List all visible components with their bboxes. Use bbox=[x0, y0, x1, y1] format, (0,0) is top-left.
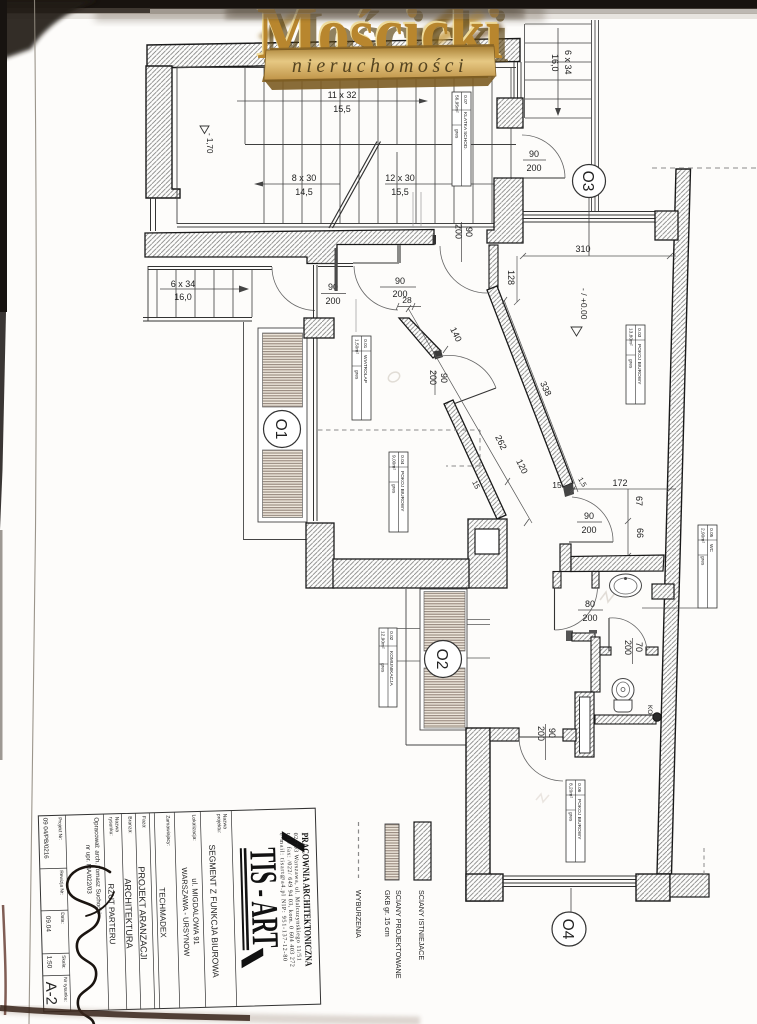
svg-text:0.05: 0.05 bbox=[708, 528, 714, 538]
svg-text:6 x 34: 6 x 34 bbox=[563, 50, 573, 75]
svg-text:Nr rysunku:: Nr rysunku: bbox=[62, 977, 69, 1002]
svg-text:POKOJ BIUROWY: POKOJ BIUROWY bbox=[576, 799, 582, 840]
svg-text:1:50: 1:50 bbox=[45, 956, 52, 969]
svg-text:KO: KO bbox=[646, 705, 653, 714]
svg-text:TECHMADEX: TECHMADEX bbox=[157, 887, 167, 938]
svg-text:rysunku:: rysunku: bbox=[107, 817, 114, 836]
svg-text:200: 200 bbox=[581, 525, 596, 535]
svg-text:2,90m²: 2,90m² bbox=[699, 528, 705, 543]
svg-text:- 1,70: - 1,70 bbox=[205, 133, 214, 154]
svg-text:14,5: 14,5 bbox=[295, 187, 313, 197]
svg-text:RZUT PARTERU: RZUT PARTERU bbox=[106, 883, 117, 944]
svg-text:6 x 34: 6 x 34 bbox=[171, 279, 196, 289]
svg-text:nieruchomości: nieruchomości bbox=[292, 55, 468, 77]
svg-text:0.01: 0.01 bbox=[362, 339, 368, 349]
svg-text:9,00m²: 9,00m² bbox=[390, 455, 396, 470]
svg-text:KOMUNIKACJA: KOMUNIKACJA bbox=[388, 651, 394, 686]
svg-text:200: 200 bbox=[536, 726, 546, 741]
svg-text:56,95m²: 56,95m² bbox=[453, 95, 459, 113]
svg-text:200: 200 bbox=[325, 296, 340, 306]
svg-text:gres: gres bbox=[379, 663, 385, 673]
svg-text:Data:: Data: bbox=[59, 912, 65, 924]
svg-text:0.06: 0.06 bbox=[576, 783, 582, 793]
svg-text:0.07: 0.07 bbox=[462, 95, 468, 105]
svg-text:1,50m²: 1,50m² bbox=[353, 339, 359, 354]
svg-text:Lokalizacja:: Lokalizacja: bbox=[190, 815, 197, 841]
svg-text:15,5: 15,5 bbox=[391, 187, 409, 197]
svg-text:200: 200 bbox=[428, 370, 438, 385]
svg-text:12,90m²: 12,90m² bbox=[379, 631, 385, 649]
svg-text:0.03: 0.03 bbox=[636, 328, 642, 338]
svg-text:Skala:: Skala: bbox=[60, 955, 66, 969]
svg-text:gres: gres bbox=[390, 484, 396, 494]
svg-text:8,20m²: 8,20m² bbox=[567, 783, 573, 798]
svg-text:Zamawiajacy:: Zamawiajacy: bbox=[164, 815, 171, 846]
svg-text:O1: O1 bbox=[272, 419, 289, 440]
svg-text:67: 67 bbox=[634, 496, 644, 506]
svg-text:O2: O2 bbox=[433, 649, 450, 670]
svg-text:200: 200 bbox=[623, 640, 633, 655]
svg-text:gres: gres bbox=[567, 812, 573, 822]
svg-text:200: 200 bbox=[582, 613, 597, 623]
svg-text:66: 66 bbox=[635, 528, 645, 538]
svg-text:0.02: 0.02 bbox=[388, 631, 394, 641]
svg-text:128: 128 bbox=[506, 270, 516, 285]
svg-text:90: 90 bbox=[547, 728, 557, 738]
svg-text:09.04: 09.04 bbox=[44, 916, 51, 933]
svg-text:ARCHITEKTURA: ARCHITEKTURA bbox=[123, 878, 135, 948]
svg-text:- / +0.00: - / +0.00 bbox=[579, 288, 589, 320]
svg-text:Branza:: Branza: bbox=[126, 816, 132, 833]
svg-text:Rewizja Nr:: Rewizja Nr: bbox=[58, 870, 65, 895]
svg-text:O3: O3 bbox=[579, 171, 596, 192]
svg-text:Faza:: Faza: bbox=[140, 816, 146, 829]
svg-text:172: 172 bbox=[612, 478, 627, 488]
svg-text:90: 90 bbox=[464, 227, 474, 237]
svg-text:15,5: 15,5 bbox=[333, 104, 351, 114]
svg-text:80: 80 bbox=[585, 599, 595, 609]
svg-text:SCIANY PROJEKTOWANE: SCIANY PROJEKTOWANE bbox=[394, 890, 403, 979]
svg-text:POKOJ BIUROWY: POKOJ BIUROWY bbox=[399, 471, 405, 512]
svg-text:200: 200 bbox=[454, 224, 464, 239]
svg-text:POKOJ BIUROWY: POKOJ BIUROWY bbox=[636, 344, 642, 385]
svg-text:Projekt Nr:: Projekt Nr: bbox=[56, 817, 63, 840]
svg-text:28: 28 bbox=[402, 295, 412, 305]
svg-text:12 x 30: 12 x 30 bbox=[385, 173, 415, 183]
svg-text:O4: O4 bbox=[559, 919, 576, 940]
svg-text:09 04/PB/0216: 09 04/PB/0216 bbox=[41, 818, 49, 860]
svg-text:KLATKA SCHOD.: KLATKA SCHOD. bbox=[462, 112, 468, 150]
svg-text:16,0: 16,0 bbox=[174, 292, 192, 302]
svg-text:16,0: 16,0 bbox=[550, 54, 560, 72]
svg-text:15: 15 bbox=[552, 480, 562, 490]
svg-text:A-2: A-2 bbox=[42, 981, 60, 1005]
svg-text:13,80m²: 13,80m² bbox=[627, 328, 633, 346]
svg-text:0.04: 0.04 bbox=[399, 455, 405, 465]
svg-text:SCIANY ISTNIEJACE: SCIANY ISTNIEJACE bbox=[417, 890, 426, 960]
svg-text:gres: gres bbox=[627, 359, 633, 369]
svg-text:ul. MIGDALOWA 91: ul. MIGDALOWA 91 bbox=[190, 878, 201, 945]
svg-text:WYBURZENIA: WYBURZENIA bbox=[354, 890, 363, 938]
svg-text:gres: gres bbox=[699, 556, 705, 566]
svg-text:200: 200 bbox=[526, 163, 541, 173]
svg-text:11 x 32: 11 x 32 bbox=[328, 90, 357, 100]
svg-text:gres: gres bbox=[453, 129, 459, 139]
svg-text:WIATROLAP: WIATROLAP bbox=[362, 355, 368, 383]
svg-text:90: 90 bbox=[529, 149, 539, 159]
svg-text:WC: WC bbox=[708, 544, 714, 553]
svg-text:90: 90 bbox=[439, 373, 449, 383]
svg-text:projektu:: projektu: bbox=[215, 814, 222, 833]
svg-text:nr upr. MA/022/03: nr upr. MA/022/03 bbox=[84, 844, 92, 894]
svg-text:GKB gr. 15 cm: GKB gr. 15 cm bbox=[383, 890, 392, 937]
svg-text:310: 310 bbox=[575, 244, 590, 254]
svg-text:70: 70 bbox=[634, 642, 644, 652]
svg-text:90: 90 bbox=[395, 276, 405, 286]
svg-text:90: 90 bbox=[584, 511, 594, 521]
svg-text:gres: gres bbox=[353, 370, 359, 380]
svg-text:8 x 30: 8 x 30 bbox=[292, 173, 317, 183]
